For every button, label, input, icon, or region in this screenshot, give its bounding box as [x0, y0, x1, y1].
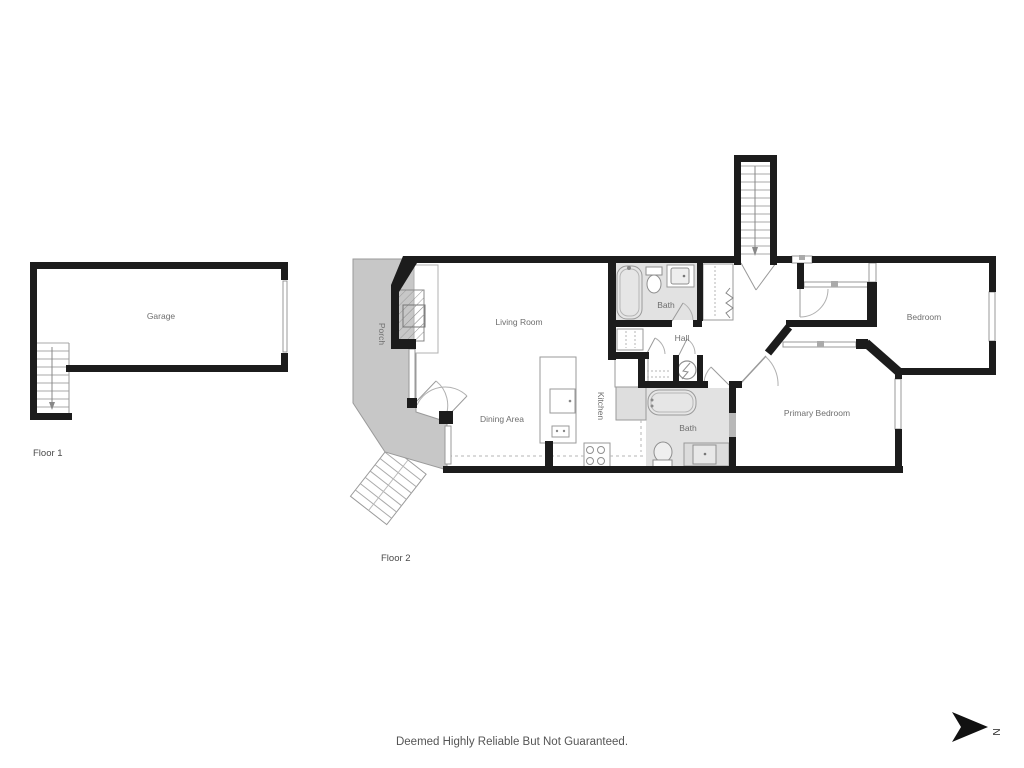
toilet-lower: [654, 442, 672, 462]
stairs-down-arrow: [752, 247, 758, 256]
tub-faucet: [627, 266, 631, 270]
window: [989, 292, 995, 341]
floor2-label: Floor 2: [381, 553, 411, 564]
dishwasher-icon: [552, 426, 569, 437]
room-label-primary-bedroom: Primary Bedroom: [784, 408, 850, 418]
washer-dryer-icon: [678, 361, 696, 379]
floor-plan-canvas: Garage Floor 1: [0, 0, 1024, 768]
window: [445, 426, 451, 464]
stairs-down-arrow: [49, 402, 55, 410]
pocket-door: [729, 413, 736, 437]
utility-closet: [703, 264, 733, 320]
floor1-label: Floor 1: [33, 448, 63, 459]
hall-closets: [647, 361, 696, 379]
disclaimer-text: Deemed Highly Reliable But Not Guarantee…: [396, 736, 628, 748]
room-label-kitchen: Kitchen: [596, 392, 606, 421]
room-label-hall: Hall: [675, 333, 690, 343]
room-label-garage: Garage: [147, 311, 176, 321]
garage-door: [283, 281, 287, 352]
room-label-bath-lower: Bath: [679, 423, 697, 433]
room-label-bedroom: Bedroom: [907, 312, 942, 322]
north-arrow-icon: N: [952, 712, 1001, 742]
room-label-living-room: Living Room: [495, 317, 542, 327]
pantry-closet: [617, 329, 643, 350]
sliding-doors: [783, 263, 876, 347]
floor-plan-page: Garage Floor 1: [0, 0, 1024, 768]
window: [895, 379, 901, 429]
refrigerator-icon: [616, 387, 646, 420]
window: [409, 349, 415, 399]
room-label-bath-upper: Bath: [657, 300, 675, 310]
floor2-plan: Living Room Dining Area Kitchen Porch Ba…: [350, 155, 996, 564]
toilet-upper: [646, 267, 662, 275]
room-label-porch: Porch: [377, 323, 387, 345]
room-label-dining-area: Dining Area: [480, 414, 524, 424]
floor1-plan: Garage Floor 1: [30, 262, 288, 459]
floor2-diagonal-walls: [768, 327, 900, 373]
north-label: N: [990, 728, 1001, 735]
